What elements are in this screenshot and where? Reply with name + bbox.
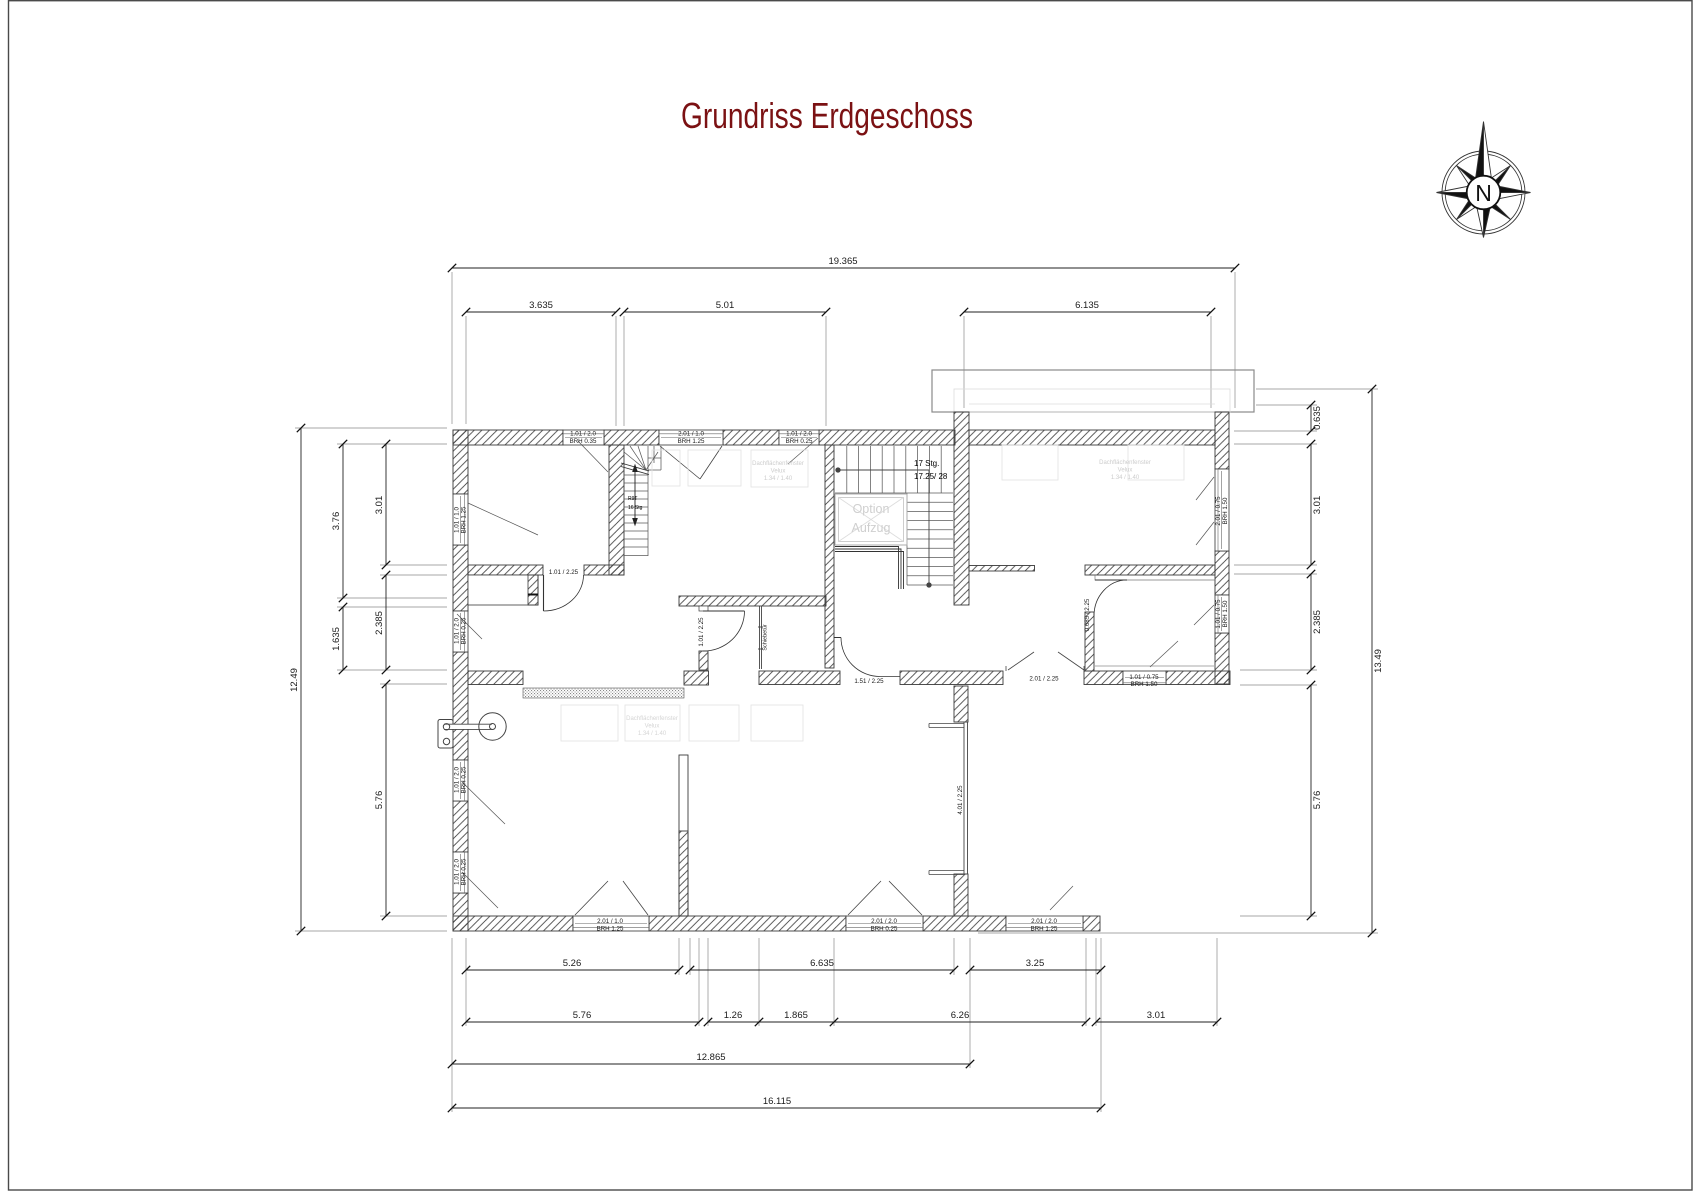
svg-text:3.01: 3.01	[1312, 496, 1323, 515]
svg-text:R9T: R9T	[628, 496, 637, 502]
svg-text:BRH 0.25: BRH 0.25	[461, 858, 468, 885]
svg-text:BRH 0.25: BRH 0.25	[871, 925, 898, 932]
svg-text:1.26: 1.26	[724, 1010, 743, 1021]
svg-text:BRH 0.25: BRH 0.25	[786, 438, 813, 445]
svg-text:BRH 0.25: BRH 0.25	[461, 766, 468, 793]
svg-text:BRH 1.50: BRH 1.50	[1131, 681, 1158, 688]
svg-text:Aufzug: Aufzug	[852, 521, 891, 535]
svg-text:1.01 / 2.0: 1.01 / 2.0	[786, 431, 812, 438]
svg-text:3.635: 3.635	[529, 300, 553, 311]
svg-text:1.635: 1.635	[331, 627, 342, 651]
svg-text:Dachflächenfenster: Dachflächenfenster	[752, 461, 804, 467]
svg-text:1.01 / 2.0: 1.01 / 2.0	[454, 767, 461, 793]
svg-text:Velux: Velux	[645, 724, 660, 730]
svg-text:6.635: 6.635	[810, 958, 834, 969]
svg-text:2.01 / 0.75: 2.01 / 0.75	[1215, 496, 1222, 526]
svg-text:2.385: 2.385	[374, 611, 385, 635]
svg-text:Grundriss Erdgeschoss: Grundriss Erdgeschoss	[681, 95, 973, 136]
svg-text:1.34 / 1.40: 1.34 / 1.40	[1111, 475, 1140, 481]
svg-text:Velux: Velux	[1118, 468, 1133, 474]
svg-text:6.26: 6.26	[951, 1010, 970, 1021]
svg-text:12.865: 12.865	[696, 1052, 725, 1063]
svg-text:5.76: 5.76	[1312, 791, 1323, 810]
svg-text:12.49: 12.49	[289, 668, 300, 692]
svg-text:4.01 / 2.25: 4.01 / 2.25	[957, 785, 964, 815]
svg-text:BRH 0.35: BRH 0.35	[570, 438, 597, 445]
svg-text:Schiebetür: Schiebetür	[763, 624, 769, 650]
svg-text:BRH 1.25: BRH 1.25	[1031, 925, 1058, 932]
svg-text:1.01 / 2.25: 1.01 / 2.25	[698, 617, 705, 647]
svg-text:2.01 / 2.25: 2.01 / 2.25	[1029, 676, 1059, 683]
svg-text:16.115: 16.115	[763, 1096, 791, 1107]
svg-text:Dachflächenfenster: Dachflächenfenster	[626, 716, 678, 722]
svg-text:BRH 1.50: BRH 1.50	[1222, 600, 1229, 627]
svg-text:3.76: 3.76	[331, 512, 342, 531]
svg-text:19.365: 19.365	[828, 256, 857, 267]
svg-text:1.01 / 2.0: 1.01 / 2.0	[454, 859, 461, 885]
svg-text:1.34 / 1.40: 1.34 / 1.40	[764, 476, 793, 482]
svg-text:13.49: 13.49	[1373, 649, 1384, 673]
svg-text:2.01 / 2.0: 2.01 / 2.0	[1031, 918, 1057, 925]
svg-text:0.685 / 2.25: 0.685 / 2.25	[1084, 598, 1091, 631]
svg-text:Dachflächenfenster: Dachflächenfenster	[1099, 460, 1151, 466]
svg-text:2.01 / 2.0: 2.01 / 2.0	[871, 918, 897, 925]
svg-text:1.01 / 2.0: 1.01 / 2.0	[570, 431, 596, 438]
svg-text:1.51 / 2.25: 1.51 / 2.25	[854, 678, 884, 685]
svg-text:Option: Option	[853, 502, 890, 516]
svg-text:1.01 / 0.75: 1.01 / 0.75	[1215, 599, 1222, 629]
svg-text:3.01: 3.01	[374, 496, 385, 515]
svg-text:6.135: 6.135	[1075, 300, 1099, 311]
svg-text:BRH 1.25: BRH 1.25	[678, 438, 705, 445]
svg-text:1.34 / 1.40: 1.34 / 1.40	[638, 731, 667, 737]
svg-text:2.01 / 1.0: 2.01 / 1.0	[597, 918, 623, 925]
svg-text:5.01: 5.01	[716, 300, 735, 311]
svg-text:17 Stg.: 17 Stg.	[914, 459, 939, 468]
svg-text:BRH 0.25: BRH 0.25	[461, 617, 468, 644]
svg-text:1.01 / 0.75: 1.01 / 0.75	[1129, 674, 1159, 681]
svg-text:0.635: 0.635	[1312, 406, 1323, 430]
svg-text:16 Stg: 16 Stg	[628, 505, 643, 511]
svg-text:N: N	[1475, 180, 1492, 206]
svg-text:1.01 / 2.25: 1.01 / 2.25	[549, 569, 579, 576]
svg-text:17.25/ 28: 17.25/ 28	[914, 472, 948, 481]
svg-text:BRH 1.25: BRH 1.25	[597, 925, 624, 932]
svg-text:BRH 1.25: BRH 1.25	[461, 506, 468, 533]
svg-text:3.25: 3.25	[1026, 958, 1045, 969]
svg-text:BRH 1.50: BRH 1.50	[1222, 497, 1229, 524]
svg-text:2.385: 2.385	[1312, 610, 1323, 634]
svg-text:5.26: 5.26	[563, 958, 582, 969]
svg-text:Velux: Velux	[771, 469, 786, 475]
svg-text:2.01 / 1.0: 2.01 / 1.0	[678, 431, 704, 438]
svg-text:3.01: 3.01	[1147, 1010, 1166, 1021]
svg-text:1.01 / 1.0: 1.01 / 1.0	[454, 507, 461, 533]
svg-text:1.865: 1.865	[784, 1010, 808, 1021]
svg-text:5.76: 5.76	[374, 791, 385, 810]
svg-text:5.76: 5.76	[573, 1010, 592, 1021]
svg-text:1.01 / 2.0: 1.01 / 2.0	[454, 618, 461, 644]
